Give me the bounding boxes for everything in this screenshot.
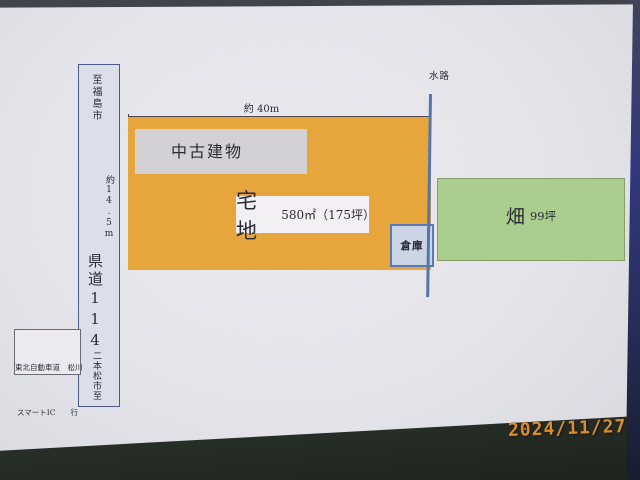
highway-note-line1: 東北自動車道 松川 [15, 360, 80, 375]
field-area-label: 99坪 [530, 208, 556, 224]
warehouse-label: 倉庫 [401, 238, 424, 253]
parcel-name-label: 宅地 [236, 185, 277, 245]
highway-note-line2: スマートIC 行 [15, 405, 80, 420]
paper-sheet: 至福島市 県道114 二本松市至 約14.5m 東北自動車道 松川 スマートIC… [0, 0, 640, 480]
used-building-box: 中古建物 [135, 129, 307, 174]
parcel-label-box: 宅地 580㎡（175坪） [236, 196, 369, 233]
field-parcel: 畑 99坪 [437, 178, 625, 261]
field-name-label: 畑 [506, 202, 525, 229]
road-frontage-dimension-label: 約14.5m [103, 175, 116, 240]
used-building-label: 中古建物 [171, 142, 243, 161]
road-destination-south-label: 二本松市至 [90, 351, 103, 401]
top-width-dimension-label: 約 40m [110, 100, 413, 115]
residential-parcel: 中古建物 宅地 580㎡（175坪） [128, 117, 431, 270]
waterway-label: 水路 [429, 68, 450, 82]
parcel-area-label: 580㎡（175坪） [281, 206, 369, 223]
plot-diagram-photo: 至福島市 県道114 二本松市至 約14.5m 東北自動車道 松川 スマートIC… [0, 0, 640, 480]
highway-access-note-box: 東北自動車道 松川 スマートIC 行 き [14, 329, 81, 375]
road-name-label: 県道114 [85, 253, 106, 352]
camera-date-stamp: 2024/11/27 [508, 416, 627, 441]
road-destination-north-label: 至福島市 [88, 74, 103, 122]
